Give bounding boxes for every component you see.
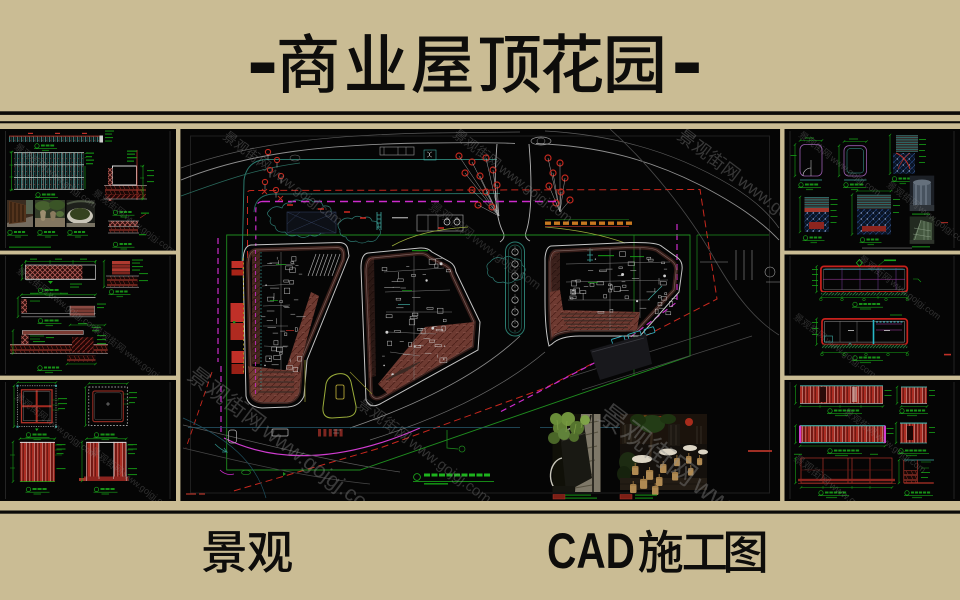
svg-text:CAD: CAD (547, 523, 635, 579)
